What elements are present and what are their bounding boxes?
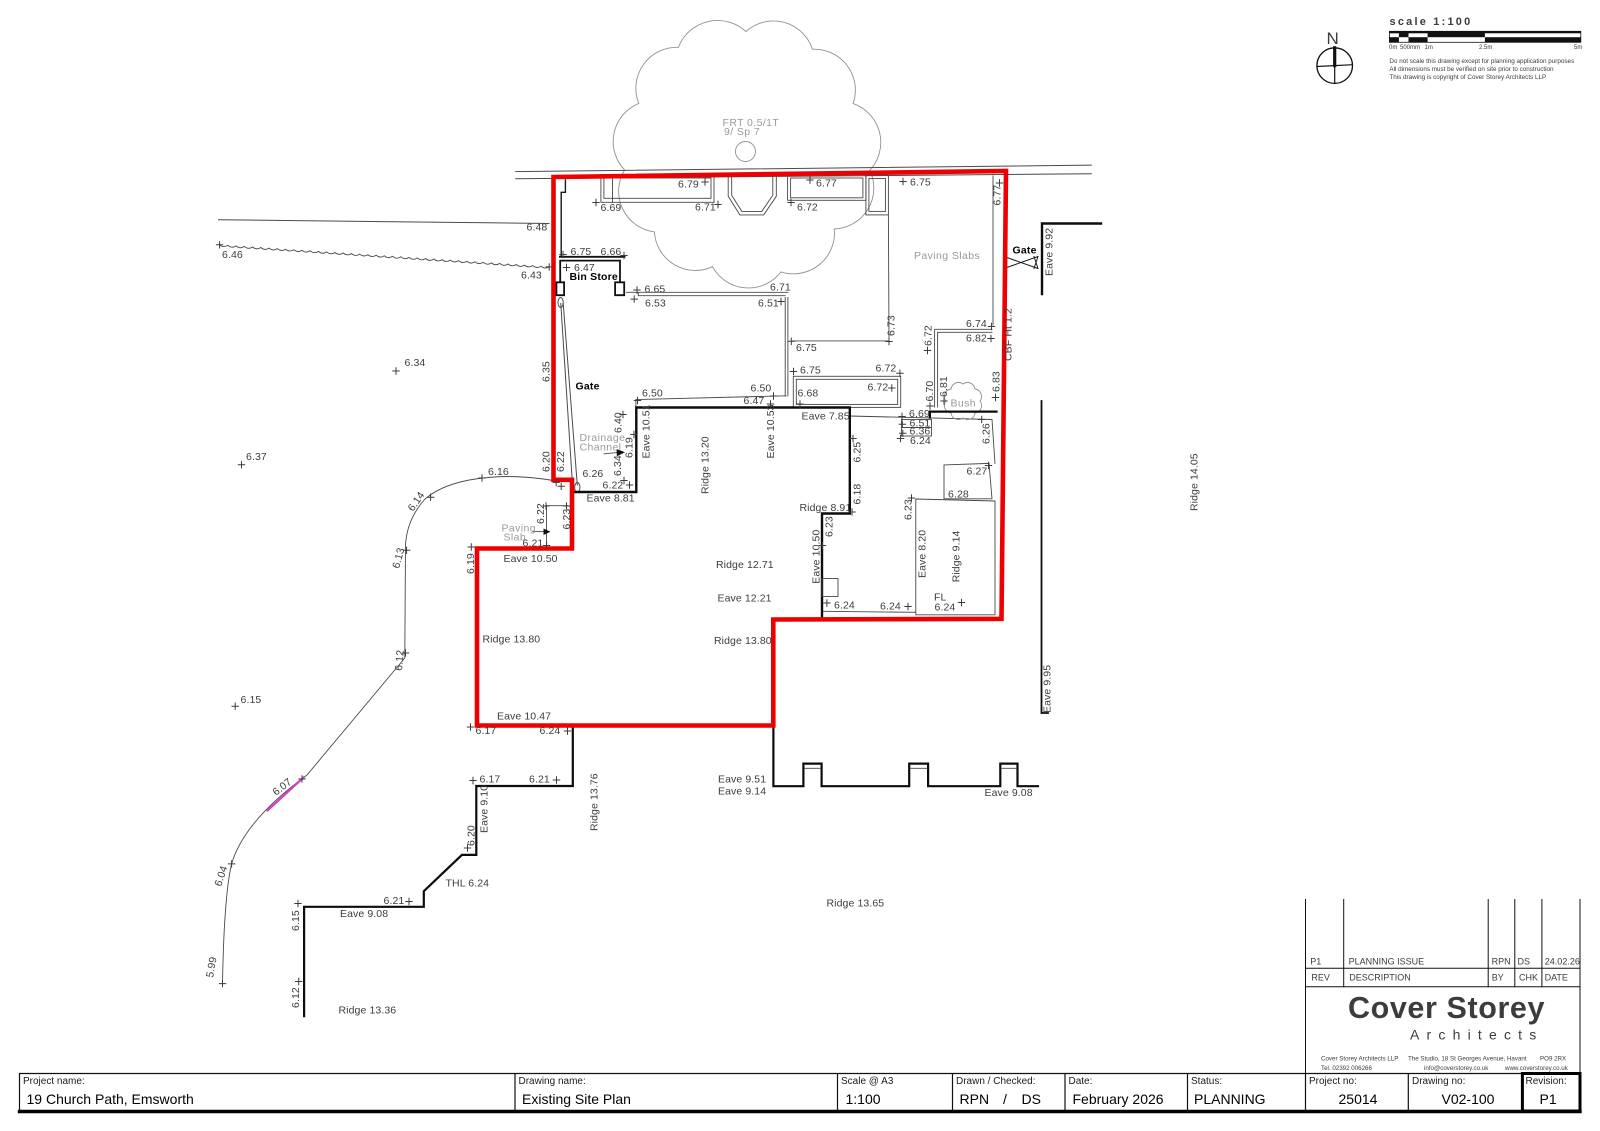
svg-text:Drawing no:: Drawing no: xyxy=(1412,1076,1465,1087)
svg-text:Eave 9.14: Eave 9.14 xyxy=(718,786,766,798)
svg-text:Gate: Gate xyxy=(576,381,600,393)
svg-text:Scale @ A3: Scale @ A3 xyxy=(841,1076,894,1087)
svg-text:CBF Ht 1.2: CBF Ht 1.2 xyxy=(1003,308,1015,361)
svg-text:Eave 9.51: Eave 9.51 xyxy=(718,774,766,786)
svg-text:6.21: 6.21 xyxy=(529,774,550,786)
svg-text:Drawn / Checked:: Drawn / Checked: xyxy=(956,1076,1035,1087)
svg-text:info@coverstorey.co.uk: info@coverstorey.co.uk xyxy=(1424,1065,1489,1072)
svg-text:6.21: 6.21 xyxy=(523,538,544,550)
svg-text:Drawing name:: Drawing name: xyxy=(519,1076,586,1087)
svg-text:THL 6.24: THL 6.24 xyxy=(446,878,490,890)
svg-text:Cover Storey Architects LLP: Cover Storey Architects LLP xyxy=(1321,1056,1398,1063)
svg-text:6.35: 6.35 xyxy=(541,361,553,382)
svg-text:6.21: 6.21 xyxy=(384,895,405,907)
svg-text:PO9 2RX: PO9 2RX xyxy=(1540,1056,1566,1063)
svg-text:1:100: 1:100 xyxy=(846,1091,881,1107)
svg-text:6.71: 6.71 xyxy=(770,282,791,294)
svg-text:6.25: 6.25 xyxy=(852,442,864,463)
svg-text:Ridge 13.36: Ridge 13.36 xyxy=(339,1005,397,1017)
svg-text:6.22: 6.22 xyxy=(603,480,624,492)
svg-text:Existing Site Plan: Existing Site Plan xyxy=(522,1091,631,1107)
svg-text:February 2026: February 2026 xyxy=(1073,1091,1164,1107)
svg-text:6.83: 6.83 xyxy=(991,371,1003,392)
svg-text:6.53: 6.53 xyxy=(645,298,666,310)
svg-text:/: / xyxy=(1003,1091,1007,1107)
svg-text:scale 1:100: scale 1:100 xyxy=(1390,16,1473,28)
svg-text:Bin Store: Bin Store xyxy=(570,271,618,283)
svg-text:Do not scale this drawing exce: Do not scale this drawing except for pla… xyxy=(1389,58,1574,65)
svg-text:6.16: 6.16 xyxy=(488,466,509,478)
svg-text:Eave 9.08: Eave 9.08 xyxy=(340,908,388,920)
svg-text:6.20: 6.20 xyxy=(466,825,478,846)
svg-text:Eave 12.21: Eave 12.21 xyxy=(718,593,772,605)
svg-text:6.15: 6.15 xyxy=(241,694,262,706)
svg-text:6.77: 6.77 xyxy=(816,178,837,190)
svg-text:6.24: 6.24 xyxy=(540,725,561,737)
svg-text:0m: 0m xyxy=(1389,45,1397,51)
svg-text:6.69: 6.69 xyxy=(601,202,622,214)
svg-text:DESCRIPTION: DESCRIPTION xyxy=(1349,972,1411,982)
svg-text:6.51: 6.51 xyxy=(758,298,779,310)
svg-text:RPN: RPN xyxy=(1492,957,1511,967)
svg-text:Eave 9.10: Eave 9.10 xyxy=(479,785,491,833)
svg-text:Gate: Gate xyxy=(1013,245,1037,257)
svg-text:6.79: 6.79 xyxy=(678,179,699,191)
svg-text:6.68: 6.68 xyxy=(798,388,819,400)
svg-text:Date:: Date: xyxy=(1069,1076,1093,1087)
svg-text:1m: 1m xyxy=(1425,45,1433,51)
svg-text:This drawing is copyright of C: This drawing is copyright of Cover Store… xyxy=(1389,74,1546,81)
svg-text:6.65: 6.65 xyxy=(645,284,666,296)
svg-text:All dimensions must be verifie: All dimensions must be verified on site … xyxy=(1389,66,1554,73)
svg-text:6.23: 6.23 xyxy=(824,516,836,537)
svg-text:Eave 9.08: Eave 9.08 xyxy=(985,787,1033,799)
svg-text:Status:: Status: xyxy=(1191,1076,1222,1087)
svg-text:V02-100: V02-100 xyxy=(1442,1091,1495,1107)
svg-text:6.74: 6.74 xyxy=(966,318,987,330)
svg-text:Tel. 02392 006266: Tel. 02392 006266 xyxy=(1321,1065,1372,1072)
svg-text:Ridge 13.65: Ridge 13.65 xyxy=(827,898,885,910)
svg-text:Ridge 14.05: Ridge 14.05 xyxy=(1189,453,1201,511)
svg-text:6.19: 6.19 xyxy=(465,553,477,574)
svg-text:6.24: 6.24 xyxy=(834,600,855,612)
svg-text:6.15: 6.15 xyxy=(290,910,302,931)
svg-text:Eave 9.95: Eave 9.95 xyxy=(1042,665,1054,713)
svg-text:6.82: 6.82 xyxy=(966,333,987,345)
svg-text:N: N xyxy=(1327,29,1339,48)
svg-text:6.77: 6.77 xyxy=(992,185,1004,206)
svg-text:Paving Slabs: Paving Slabs xyxy=(914,250,980,262)
svg-text:6.73: 6.73 xyxy=(886,315,898,336)
svg-text:CHK: CHK xyxy=(1519,972,1538,982)
svg-text:5m: 5m xyxy=(1574,45,1582,51)
svg-text:Bush: Bush xyxy=(951,398,977,410)
svg-text:6.20: 6.20 xyxy=(541,451,553,472)
svg-text:The Studio, 18 St Georges Aven: The Studio, 18 St Georges Avenue, Havant xyxy=(1408,1056,1527,1063)
svg-text:6.23: 6.23 xyxy=(902,499,914,520)
svg-text:Eave 9.92: Eave 9.92 xyxy=(1044,228,1056,276)
svg-text:Project no:: Project no: xyxy=(1309,1076,1357,1087)
svg-text:6.72: 6.72 xyxy=(923,325,935,346)
svg-text:Eave 10.47: Eave 10.47 xyxy=(497,711,551,723)
svg-text:9/ Sp 7: 9/ Sp 7 xyxy=(724,126,760,138)
svg-text:6.34: 6.34 xyxy=(612,455,624,476)
svg-text:6.19: 6.19 xyxy=(624,437,636,458)
svg-text:6.24: 6.24 xyxy=(910,435,931,447)
svg-text:6.34: 6.34 xyxy=(405,357,426,369)
svg-text:REV: REV xyxy=(1311,972,1330,982)
svg-text:P1: P1 xyxy=(1310,957,1321,967)
svg-text:Ridge 12.71: Ridge 12.71 xyxy=(716,559,774,571)
svg-text:Ridge 9.14: Ridge 9.14 xyxy=(950,530,962,582)
svg-text:Eave 8.20: Eave 8.20 xyxy=(916,530,928,578)
svg-text:6.18: 6.18 xyxy=(852,484,864,505)
svg-text:6.50: 6.50 xyxy=(751,383,772,395)
svg-text:Eave 10.53: Eave 10.53 xyxy=(765,404,777,458)
svg-text:6.75: 6.75 xyxy=(571,246,592,258)
svg-text:Eave 10.50: Eave 10.50 xyxy=(810,530,822,584)
svg-text:Ridge 13.76: Ridge 13.76 xyxy=(589,773,601,831)
svg-text:Ridge 13.80: Ridge 13.80 xyxy=(714,635,772,647)
svg-text:6.28: 6.28 xyxy=(948,489,969,501)
svg-text:6.72: 6.72 xyxy=(868,382,889,394)
svg-text:Ridge 13.80: Ridge 13.80 xyxy=(483,634,541,646)
svg-text:6.23: 6.23 xyxy=(561,509,573,530)
svg-text:6.12: 6.12 xyxy=(290,987,302,1008)
svg-text:6.75: 6.75 xyxy=(910,177,931,189)
svg-text:www.coverstorey.co.uk: www.coverstorey.co.uk xyxy=(1504,1065,1569,1072)
svg-text:Cover Storey: Cover Storey xyxy=(1348,991,1545,1025)
svg-text:BY: BY xyxy=(1492,972,1504,982)
svg-text:6.17: 6.17 xyxy=(476,725,497,737)
svg-text:24.02.26: 24.02.26 xyxy=(1545,957,1580,967)
svg-text:6.46: 6.46 xyxy=(222,249,243,261)
svg-text:6.66: 6.66 xyxy=(601,246,622,258)
svg-text:Eave 10.50: Eave 10.50 xyxy=(504,553,558,565)
svg-text:6.75: 6.75 xyxy=(800,365,821,377)
svg-text:Ridge 8.91: Ridge 8.91 xyxy=(800,502,852,514)
svg-text:6.37: 6.37 xyxy=(246,451,267,463)
svg-text:6.72: 6.72 xyxy=(876,363,897,375)
svg-text:RPN: RPN xyxy=(960,1091,990,1107)
svg-text:500mm: 500mm xyxy=(1400,45,1420,51)
svg-text:6.27: 6.27 xyxy=(967,466,988,478)
svg-text:6.48: 6.48 xyxy=(527,222,548,234)
svg-text:Eave 10.51: Eave 10.51 xyxy=(641,404,653,458)
svg-text:2.5m: 2.5m xyxy=(1479,45,1492,51)
svg-text:Project name:: Project name: xyxy=(23,1076,85,1087)
svg-text:PLANNING: PLANNING xyxy=(1194,1091,1266,1107)
svg-text:6.75: 6.75 xyxy=(796,342,817,354)
svg-text:Eave 7.85: Eave 7.85 xyxy=(802,411,850,423)
svg-text:6.22: 6.22 xyxy=(555,451,567,472)
svg-text:6.24: 6.24 xyxy=(880,601,901,613)
svg-text:6.50: 6.50 xyxy=(642,388,663,400)
svg-text:DS: DS xyxy=(1022,1091,1041,1107)
svg-text:6.72: 6.72 xyxy=(797,202,818,214)
svg-text:6.47: 6.47 xyxy=(744,395,765,407)
svg-text:DATE: DATE xyxy=(1545,972,1568,982)
svg-text:19 Church Path, Emsworth: 19 Church Path, Emsworth xyxy=(27,1091,194,1107)
svg-text:25014: 25014 xyxy=(1339,1091,1378,1107)
svg-text:Channel: Channel xyxy=(580,442,622,454)
svg-text:PLANNING ISSUE: PLANNING ISSUE xyxy=(1349,957,1425,967)
svg-text:6.24: 6.24 xyxy=(935,602,956,614)
svg-text:Ridge 13.20: Ridge 13.20 xyxy=(700,436,712,494)
svg-text:Revision:: Revision: xyxy=(1526,1076,1567,1087)
svg-text:6.26: 6.26 xyxy=(583,468,604,480)
svg-text:6.26: 6.26 xyxy=(981,423,993,444)
svg-text:DS: DS xyxy=(1518,957,1531,967)
svg-text:6.17: 6.17 xyxy=(480,774,501,786)
svg-text:P1: P1 xyxy=(1540,1091,1557,1107)
svg-text:6.81: 6.81 xyxy=(938,376,950,397)
svg-text:6.43: 6.43 xyxy=(521,270,542,282)
svg-text:6.71: 6.71 xyxy=(695,202,716,214)
svg-text:Eave 8.81: Eave 8.81 xyxy=(587,493,635,505)
svg-text:6.70: 6.70 xyxy=(924,381,936,402)
svg-text:Architects: Architects xyxy=(1410,1027,1543,1043)
